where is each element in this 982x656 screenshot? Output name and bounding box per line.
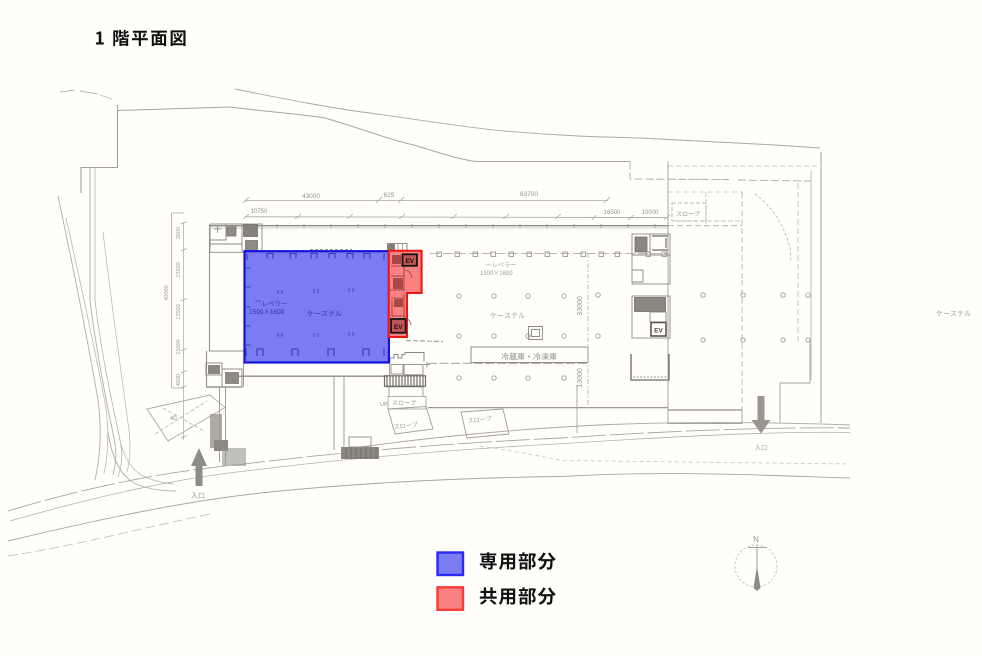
svg-text:EV: EV [405, 258, 414, 265]
svg-text:13500: 13500 [176, 262, 182, 277]
svg-text:40000: 40000 [164, 285, 170, 300]
svg-text:13000: 13000 [577, 368, 584, 388]
svg-text:EV: EV [394, 324, 403, 331]
svg-text:13500: 13500 [176, 304, 182, 319]
svg-text:EV: EV [654, 328, 663, 335]
svg-text:16500: 16500 [604, 210, 621, 216]
svg-text:4500: 4500 [176, 374, 182, 386]
svg-text:10000: 10000 [642, 210, 659, 216]
svg-text:33000: 33000 [577, 296, 584, 316]
svg-text:UP: UP [380, 402, 388, 408]
svg-text:63700: 63700 [520, 191, 538, 198]
svg-text:N: N [753, 535, 759, 544]
svg-text:3600: 3600 [176, 227, 182, 239]
svg-text:10750: 10750 [251, 209, 268, 215]
svg-text:43000: 43000 [302, 193, 320, 200]
svg-text:15000: 15000 [176, 339, 182, 354]
svg-text:40: 40 [170, 416, 177, 422]
svg-text:625: 625 [384, 192, 395, 199]
